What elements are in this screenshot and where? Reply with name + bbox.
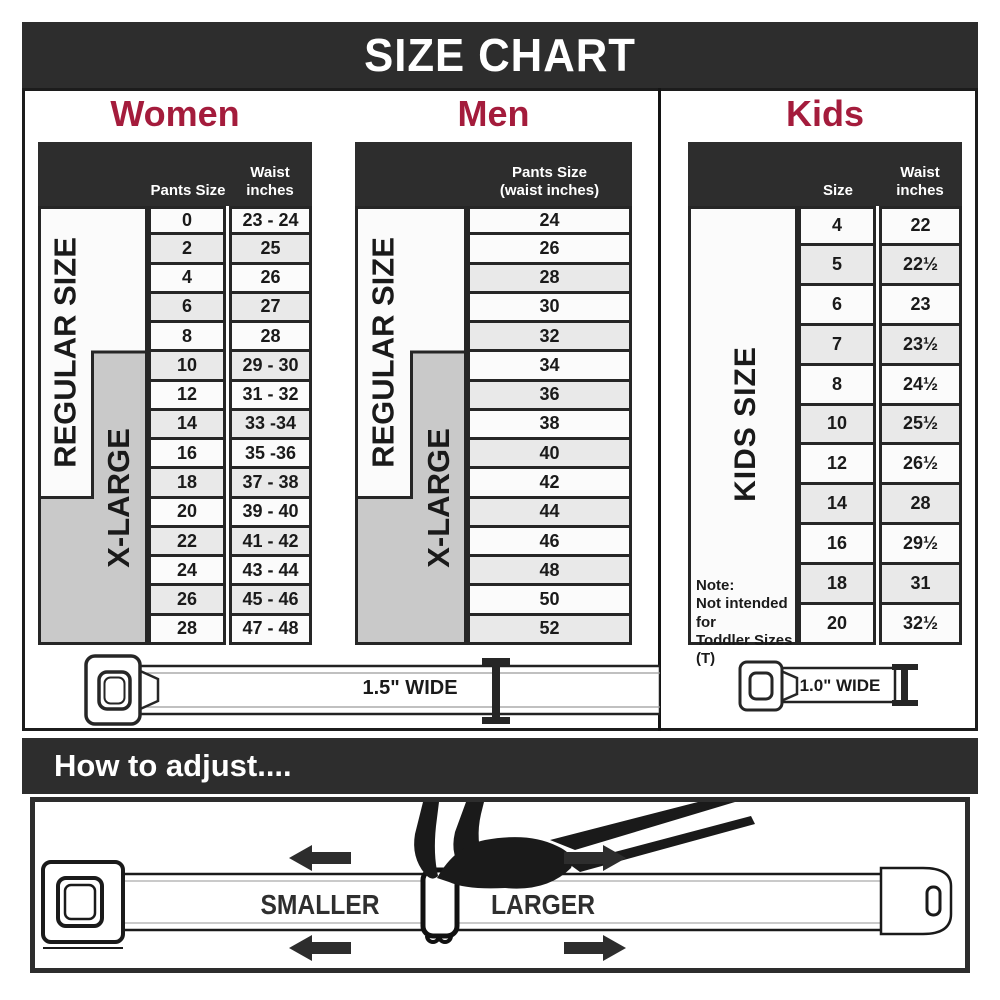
table-cell: 23½ — [879, 323, 962, 366]
table-cell: 28 — [148, 613, 226, 645]
title-bar: SIZE CHART — [22, 22, 978, 88]
women-heading: Women — [38, 92, 312, 136]
kids-table-header: Size Waist inches — [688, 142, 962, 206]
men-size-range-labels: REGULAR SIZE X-LARGE — [355, 206, 467, 645]
adult-belt-width-label: 1.5" WIDE — [340, 677, 480, 700]
kids-heading: Kids — [688, 92, 962, 136]
smaller-label: SMALLER — [250, 889, 391, 921]
table-cell: 27 — [229, 291, 312, 323]
table-cell: 43 - 44 — [229, 554, 312, 586]
table-cell: 39 - 40 — [229, 496, 312, 528]
table-cell: 26½ — [879, 442, 962, 485]
table-cell: 32½ — [879, 602, 962, 645]
table-cell: 31 — [879, 562, 962, 605]
men-xlarge-label: X-LARGE — [411, 352, 467, 644]
arrow-left-icon — [289, 935, 351, 961]
table-cell: 18 — [798, 562, 876, 605]
table-cell: 37 - 38 — [229, 466, 312, 498]
men-size-table: Pants Size (waist inches) 24262830323436… — [355, 142, 632, 645]
arrow-left-icon — [289, 845, 351, 871]
table-cell: 38 — [467, 408, 632, 440]
kids-waist-header: Waist inches — [878, 164, 962, 202]
kids-size-table: Size Waist inches 422522½623723½824½1025… — [688, 142, 962, 645]
men-pants-size-header: Pants Size (waist inches) — [467, 164, 632, 202]
table-cell: 33 -34 — [229, 408, 312, 440]
kids-belt-width-label: 1.0" WIDE — [795, 676, 885, 696]
table-cell: 10 — [798, 403, 876, 446]
table-cell: 28 — [879, 482, 962, 525]
table-cell: 12 — [148, 379, 226, 411]
table-cell: 22 — [879, 206, 962, 246]
table-cell: 26 — [467, 232, 632, 264]
table-cell: 10 — [148, 349, 226, 381]
men-regular-size-label: REGULAR SIZE — [357, 208, 410, 498]
table-cell: 36 — [467, 379, 632, 411]
table-cell: 25½ — [879, 403, 962, 446]
table-cell: 14 — [148, 408, 226, 440]
table-cell: 23 - 24 — [229, 206, 312, 235]
table-cell: 28 — [229, 320, 312, 352]
table-cell: 14 — [798, 482, 876, 525]
seatbelt-buckle-icon — [43, 862, 123, 948]
women-size-range-labels: REGULAR SIZE X-LARGE — [38, 206, 148, 645]
table-cell: 8 — [148, 320, 226, 352]
table-cell: 18 — [148, 466, 226, 498]
belt-tip — [881, 868, 951, 934]
table-cell: 46 — [467, 525, 632, 557]
table-cell: 4 — [798, 206, 876, 246]
table-cell: 8 — [798, 363, 876, 406]
table-cell: 22 — [148, 525, 226, 557]
table-cell: 26 — [229, 262, 312, 294]
arrow-right-icon — [564, 935, 626, 961]
table-cell: 32 — [467, 320, 632, 352]
table-cell: 12 — [798, 442, 876, 485]
table-cell: 42 — [467, 466, 632, 498]
women-pants-size-header: Pants Size — [148, 182, 228, 201]
table-cell: 25 — [229, 232, 312, 264]
table-cell: 24 — [148, 554, 226, 586]
table-cell: 34 — [467, 349, 632, 381]
table-cell: 47 - 48 — [229, 613, 312, 645]
adjust-belt-illustration — [35, 802, 965, 968]
table-cell: 24½ — [879, 363, 962, 406]
table-cell: 22½ — [879, 243, 962, 286]
table-cell: 23 — [879, 283, 962, 326]
table-cell: 41 - 42 — [229, 525, 312, 557]
kids-size-label: KIDS SIZE — [716, 274, 776, 574]
table-cell: 45 - 46 — [229, 583, 312, 615]
table-cell: 28 — [467, 262, 632, 294]
table-cell: 50 — [467, 583, 632, 615]
table-cell: 7 — [798, 323, 876, 366]
kids-size-range-labels: KIDS SIZE Note: Not intended for Toddler… — [688, 206, 798, 645]
table-cell: 40 — [467, 437, 632, 469]
kids-size-header: Size — [798, 182, 878, 201]
women-table-header: Pants Size Waist inches — [38, 142, 312, 206]
panel-divider — [658, 88, 661, 731]
size-chart-page: SIZE CHART Women Men Kids Pants Size Wai… — [0, 0, 1000, 1000]
table-cell: 6 — [148, 291, 226, 323]
table-cell: 20 — [148, 496, 226, 528]
table-cell: 5 — [798, 243, 876, 286]
adjust-section-header: How to adjust.... — [22, 738, 978, 794]
women-size-table: Pants Size Waist inches 023 - 2422542662… — [38, 142, 312, 645]
table-cell: 0 — [148, 206, 226, 235]
women-regular-size-label: REGULAR SIZE — [39, 208, 92, 498]
table-cell: 16 — [798, 522, 876, 565]
table-cell: 29 - 30 — [229, 349, 312, 381]
table-cell: 4 — [148, 262, 226, 294]
table-cell: 29½ — [879, 522, 962, 565]
table-cell: 52 — [467, 613, 632, 645]
women-waist-header: Waist inches — [228, 164, 312, 202]
men-table-header: Pants Size (waist inches) — [355, 142, 632, 206]
table-cell: 44 — [467, 496, 632, 528]
table-cell: 31 - 32 — [229, 379, 312, 411]
table-cell: 26 — [148, 583, 226, 615]
table-cell: 6 — [798, 283, 876, 326]
adjust-heading: How to adjust.... — [22, 748, 292, 784]
table-cell: 30 — [467, 291, 632, 323]
table-cell: 48 — [467, 554, 632, 586]
page-title: SIZE CHART — [364, 28, 636, 82]
table-cell: 24 — [467, 206, 632, 235]
table-cell: 20 — [798, 602, 876, 645]
table-cell: 35 -36 — [229, 437, 312, 469]
table-cell: 2 — [148, 232, 226, 264]
men-heading: Men — [355, 92, 632, 136]
larger-label: LARGER — [477, 889, 609, 921]
table-cell: 16 — [148, 437, 226, 469]
women-xlarge-label: X-LARGE — [91, 352, 147, 644]
